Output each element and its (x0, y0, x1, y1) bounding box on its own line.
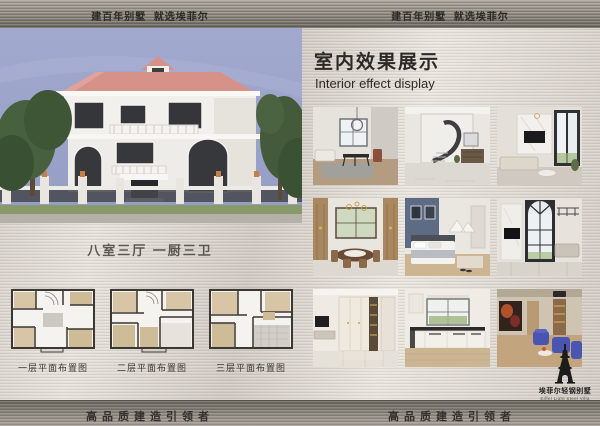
interior-photo-dining (313, 198, 398, 276)
villa-exterior-photo (0, 28, 302, 223)
section-subtitle: Interior effect display (315, 76, 435, 91)
top-band: 建百年别墅 就选埃菲尔 建百年别墅 就选埃菲尔 (0, 0, 600, 28)
villa-illustration (0, 28, 302, 223)
header-slogan-left: 建百年别墅 就选埃菲尔 (0, 8, 300, 23)
floor-plan-2: 二层平面布置图 (107, 287, 197, 374)
floor-plan-1-drawing (9, 287, 97, 353)
layout-summary: 八室三厅 一厨三卫 (0, 240, 300, 259)
bottom-band: 高品质建造引领者 高品质建造引领者 (0, 400, 600, 426)
floor-plan-3-caption: 三层平面布置图 (216, 361, 286, 374)
footer-slogan-left: 高品质建造引领者 (0, 408, 300, 424)
brand-logo: 埃菲尔轻钢别墅 Eiffel Light Steel Villa (525, 344, 600, 401)
floor-plan-3-drawing (207, 287, 295, 353)
interior-photo-living-dining (313, 107, 398, 185)
brochure-page: 建百年别墅 就选埃菲尔 建百年别墅 就选埃菲尔 (0, 0, 600, 426)
brand-name: 埃菲尔轻钢别墅 (525, 386, 600, 396)
interior-photo-tall-living (497, 107, 582, 185)
interior-photo-kitchen (405, 289, 490, 367)
floor-plan-3: 三层平面布置图 (206, 287, 296, 374)
interior-photo-staircase (405, 107, 490, 185)
interior-photo-bedroom (405, 198, 490, 276)
floor-plan-1: 一层平面布置图 (8, 287, 98, 374)
brand-subtext: Eiffel Light Steel Villa (525, 396, 600, 401)
footer-slogan-right: 高品质建造引领者 (302, 408, 600, 424)
floor-plan-1-caption: 一层平面布置图 (18, 361, 88, 374)
section-title: 室内效果展示 (314, 47, 440, 74)
eiffel-tower-icon (548, 344, 582, 385)
interior-photo-arched-window-living (497, 198, 582, 276)
floor-plan-2-caption: 二层平面布置图 (117, 361, 187, 374)
floor-plan-2-drawing (108, 287, 196, 353)
interior-photo-wardrobe-hall (313, 289, 398, 367)
header-slogan-right: 建百年别墅 就选埃菲尔 (300, 8, 600, 23)
interior-gallery (313, 107, 582, 367)
floor-plans: 一层平面布置图 二层平面布置图 (8, 287, 296, 374)
